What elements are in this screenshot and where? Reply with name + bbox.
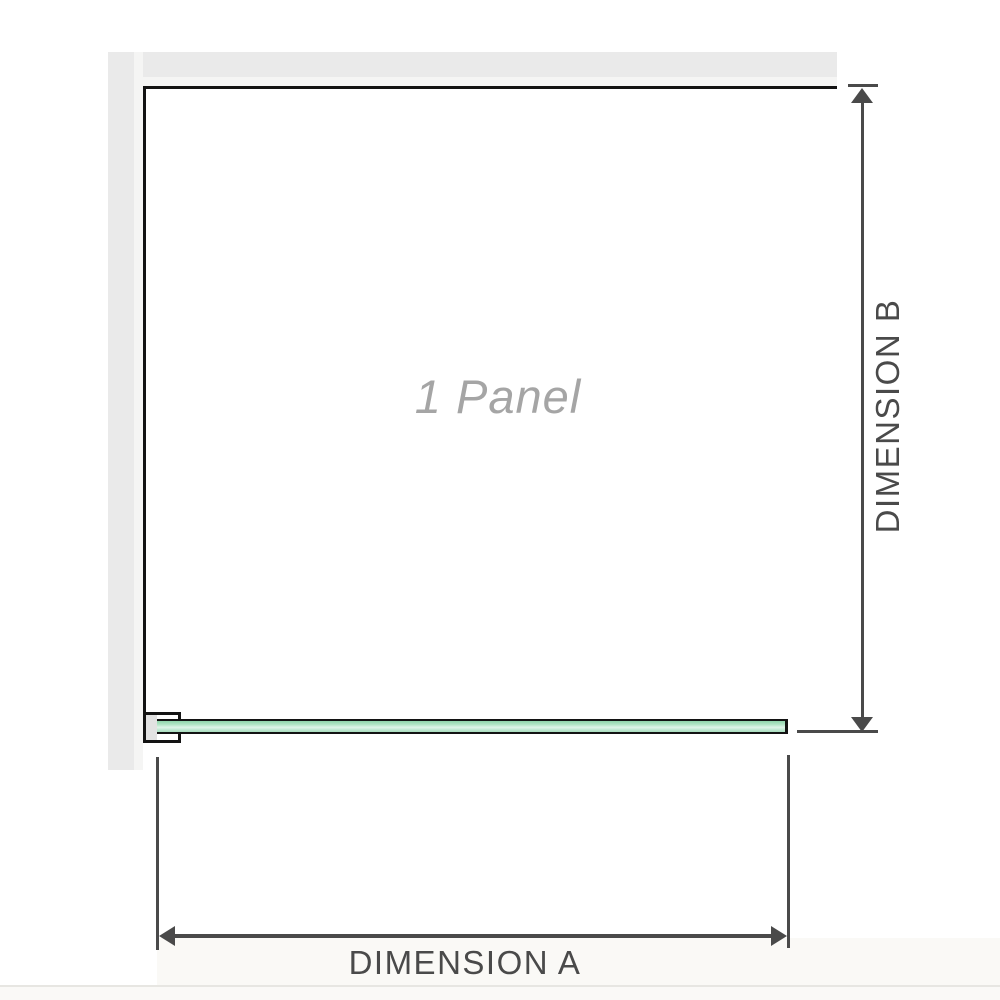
dimension-a-extension-right [787,755,790,948]
panel-count-label: 1 Panel [348,372,648,422]
dimension-a-arrowhead-right-icon [771,926,787,946]
dimension-b-line [861,99,864,721]
dimension-a-line [170,934,776,938]
dimension-a-arrowhead-left-icon [159,926,175,946]
dimension-a-label: DIMENSION A [315,944,615,982]
dimension-b-label: DIMENSION B [868,266,908,566]
dimension-a-extension-left [156,757,159,950]
wall-inner-edge-top-line [143,86,837,89]
glass-panel [157,719,788,734]
dimension-b-tick-bottom [797,730,878,733]
wall-inner-edge-left-line [143,86,146,713]
shower-panel-dimension-diagram: 1 Panel DIMENSION B DIMENSION A [0,0,1000,1000]
dimension-b-tick-top [848,84,878,87]
wall-bracket-pad [146,715,157,740]
floor-shadow-below [0,987,1000,1000]
dimension-b-arrowhead-up-icon [851,88,873,103]
wall-left [108,52,143,770]
wall-top [108,52,837,86]
